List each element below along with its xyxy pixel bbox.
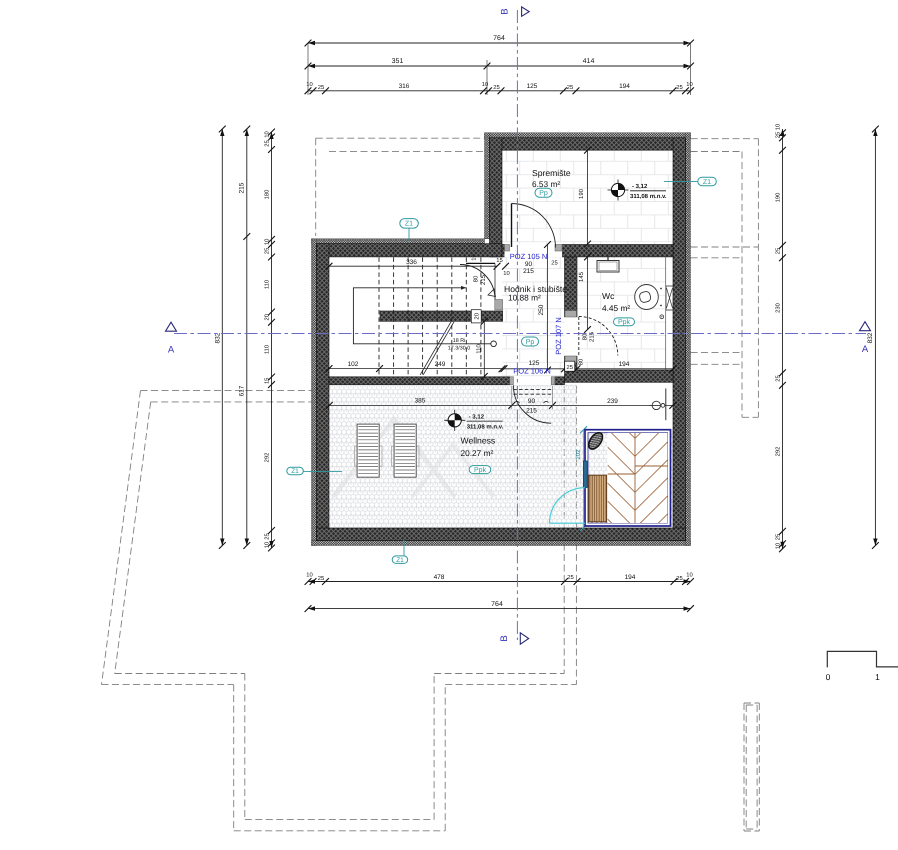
svg-text:25: 25 [567, 84, 573, 91]
svg-text:194: 194 [619, 361, 630, 368]
svg-text:10: 10 [263, 131, 270, 137]
svg-text:Z1: Z1 [396, 557, 404, 564]
svg-text:250: 250 [538, 304, 545, 315]
svg-text:25: 25 [774, 132, 781, 138]
svg-text:311,08 m.n.v.: 311,08 m.n.v. [630, 193, 667, 200]
svg-text:194: 194 [619, 83, 630, 90]
svg-text:180: 180 [263, 190, 270, 200]
svg-text:Wellness: Wellness [461, 436, 496, 446]
svg-text:POZ 106 N: POZ 106 N [513, 366, 551, 375]
svg-text:10: 10 [686, 572, 692, 579]
svg-text:292: 292 [263, 453, 270, 463]
svg-text:832: 832 [867, 332, 874, 343]
svg-text:10: 10 [686, 81, 692, 88]
svg-text:215: 215 [523, 268, 534, 275]
svg-text:10: 10 [306, 572, 312, 579]
svg-text:617: 617 [239, 385, 246, 396]
svg-text:25: 25 [567, 574, 573, 581]
svg-text:20.27 m²: 20.27 m² [461, 448, 494, 458]
svg-text:17.3/30.0: 17.3/30.0 [448, 345, 470, 351]
svg-text:A: A [168, 345, 175, 356]
svg-text:Pp: Pp [539, 190, 548, 197]
svg-text:110: 110 [475, 344, 482, 354]
svg-text:25: 25 [774, 375, 781, 381]
svg-text:4.45 m²: 4.45 m² [602, 303, 630, 313]
svg-text:25: 25 [774, 248, 781, 254]
svg-text:20: 20 [263, 314, 270, 320]
svg-text:18 Ri: 18 Ri [453, 338, 466, 344]
svg-text:215: 215 [526, 408, 537, 415]
svg-text:25: 25 [676, 84, 682, 91]
svg-text:190: 190 [774, 193, 781, 203]
svg-text:Z1: Z1 [405, 221, 413, 228]
svg-text:- 3,12: - 3,12 [469, 413, 485, 420]
svg-text:125: 125 [527, 83, 538, 90]
svg-text:25: 25 [566, 364, 572, 371]
svg-text:25: 25 [551, 260, 557, 267]
svg-text:10: 10 [503, 270, 509, 277]
svg-text:25: 25 [676, 575, 682, 582]
svg-text:764: 764 [491, 601, 503, 608]
svg-text:80: 80 [473, 275, 480, 282]
svg-text:10: 10 [774, 543, 781, 549]
svg-text:25: 25 [263, 140, 270, 146]
svg-text:80: 80 [578, 359, 585, 365]
svg-text:110: 110 [263, 345, 270, 354]
svg-text:90: 90 [525, 261, 533, 268]
svg-text:10: 10 [263, 542, 270, 548]
svg-text:145: 145 [578, 271, 585, 282]
svg-text:414: 414 [583, 58, 595, 65]
svg-text:B: B [499, 635, 510, 641]
svg-text:215: 215 [239, 182, 246, 193]
svg-text:15: 15 [496, 258, 502, 264]
svg-text:239: 239 [607, 398, 618, 405]
svg-text:POZ 107 N: POZ 107 N [554, 317, 563, 355]
svg-text:249: 249 [435, 361, 446, 368]
svg-text:110: 110 [263, 280, 270, 289]
svg-text:B: B [500, 8, 511, 14]
svg-text:25: 25 [774, 534, 781, 540]
svg-text:10.88 m²: 10.88 m² [508, 293, 541, 303]
svg-text:1: 1 [875, 672, 880, 682]
svg-text:90: 90 [528, 398, 536, 405]
svg-text:10: 10 [471, 254, 478, 260]
svg-text:Z1: Z1 [703, 179, 711, 186]
svg-text:311,08 m.n.v.: 311,08 m.n.v. [467, 423, 504, 430]
svg-text:385: 385 [415, 398, 426, 405]
svg-text:25: 25 [318, 575, 324, 582]
svg-text:230: 230 [774, 303, 781, 313]
svg-text:Pp: Pp [526, 339, 535, 346]
svg-text:336: 336 [406, 259, 417, 266]
svg-text:351: 351 [392, 58, 404, 65]
svg-text:25: 25 [263, 248, 270, 254]
svg-text:10: 10 [306, 81, 312, 88]
svg-text:292: 292 [774, 447, 781, 457]
svg-text:Spremište: Spremište [532, 168, 571, 178]
svg-text:215: 215 [589, 331, 596, 342]
svg-text:Ppk: Ppk [618, 318, 631, 326]
svg-text:764: 764 [493, 35, 505, 42]
svg-text:15: 15 [264, 378, 270, 384]
svg-text:- 3,12: - 3,12 [632, 183, 648, 190]
svg-text:316: 316 [399, 83, 410, 90]
svg-text:25: 25 [263, 533, 270, 539]
svg-text:10: 10 [263, 239, 270, 245]
svg-text:Ppk: Ppk [474, 466, 487, 474]
svg-text:25: 25 [493, 84, 499, 91]
svg-text:Z1: Z1 [291, 468, 299, 475]
svg-text:20: 20 [474, 312, 481, 319]
svg-text:478: 478 [434, 574, 445, 581]
svg-text:Wc: Wc [602, 291, 615, 301]
svg-text:0: 0 [826, 672, 831, 682]
svg-text:80: 80 [582, 333, 589, 340]
svg-text:194: 194 [625, 574, 636, 581]
svg-text:10: 10 [774, 124, 781, 130]
svg-text:215: 215 [480, 274, 487, 285]
svg-text:190: 190 [578, 188, 585, 199]
svg-text:A: A [862, 344, 869, 355]
svg-text:25: 25 [318, 84, 324, 91]
svg-text:202: 202 [575, 449, 582, 460]
svg-text:6.53 m²: 6.53 m² [532, 179, 560, 189]
svg-text:102: 102 [348, 361, 359, 368]
